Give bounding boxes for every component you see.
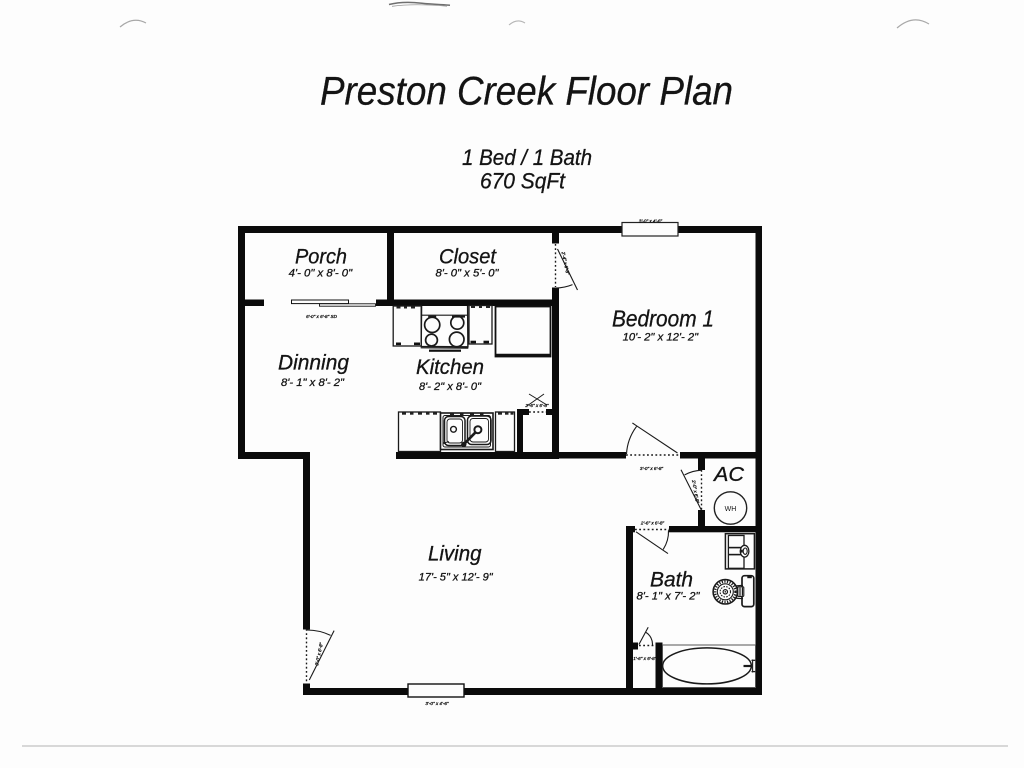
- svg-text:Porch: Porch: [295, 246, 347, 269]
- svg-text:AC: AC: [713, 464, 745, 486]
- svg-text:8'- 1" x 8'- 2": 8'- 1" x 8'- 2": [281, 377, 345, 389]
- svg-text:17'- 5" x 12'- 9": 17'- 5" x 12'- 9": [419, 571, 494, 583]
- svg-text:3'-0" x 6'-8": 3'-0" x 6'-8": [640, 466, 664, 471]
- svg-text:8'- 1" x 7'- 2": 8'- 1" x 7'- 2": [637, 591, 701, 603]
- svg-text:2'-6" x 6'-8": 2'-6" x 6'-8": [524, 403, 549, 408]
- svg-text:6'-0" x 6'-8" SD: 6'-0" x 6'-8" SD: [306, 314, 337, 319]
- svg-text:8'- 0" x 5'- 0": 8'- 0" x 5'- 0": [436, 268, 500, 280]
- svg-text:Preston Creek Floor Plan: Preston Creek Floor Plan: [320, 70, 733, 114]
- svg-text:Bedroom 1: Bedroom 1: [612, 305, 714, 331]
- svg-text:670 SqFt: 670 SqFt: [480, 169, 566, 194]
- svg-text:WH: WH: [725, 506, 737, 513]
- svg-text:Closet: Closet: [439, 246, 497, 269]
- svg-text:2'-6" x 6'-8": 2'-6" x 6'-8": [640, 521, 665, 526]
- svg-text:1'-6" x 6'-8": 1'-6" x 6'-8": [633, 656, 657, 661]
- svg-text:3'-0" x 4'-6": 3'-0" x 4'-6": [425, 701, 449, 706]
- svg-text:Kitchen: Kitchen: [416, 356, 484, 379]
- svg-text:Bath: Bath: [650, 568, 693, 591]
- svg-text:Living: Living: [428, 543, 482, 566]
- svg-text:10'- 2" x 12'- 2": 10'- 2" x 12'- 2": [623, 331, 700, 343]
- svg-text:8'- 2" x 8'- 0": 8'- 2" x 8'- 0": [419, 381, 482, 393]
- svg-text:Dinning: Dinning: [278, 352, 349, 375]
- svg-text:1 Bed / 1 Bath: 1 Bed / 1 Bath: [462, 145, 592, 170]
- svg-text:4'- 0" x 8'- 0": 4'- 0" x 8'- 0": [289, 268, 354, 280]
- svg-text:3'-0" x 4'-6": 3'-0" x 4'-6": [639, 218, 663, 223]
